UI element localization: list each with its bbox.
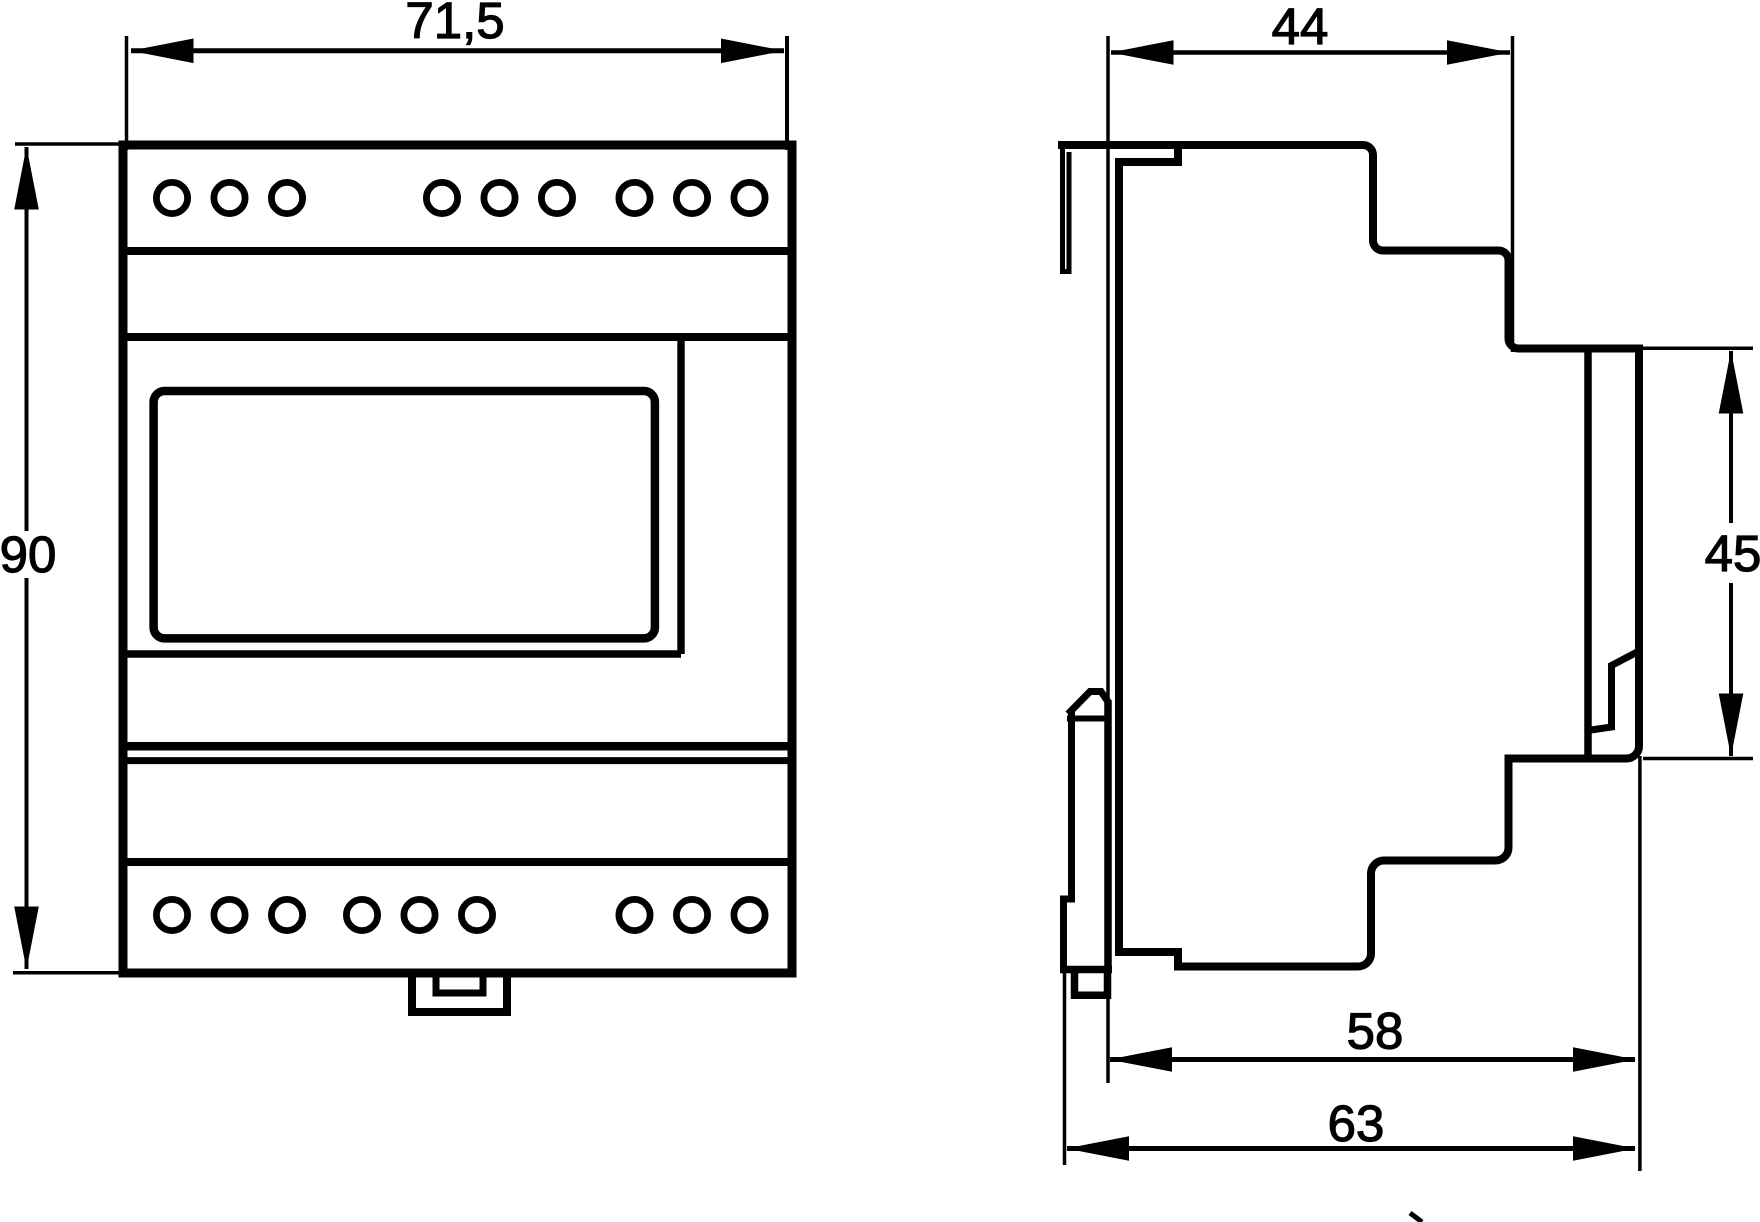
svg-text:71,5: 71,5	[405, 0, 504, 49]
svg-text:45: 45	[1705, 525, 1760, 582]
svg-text:44: 44	[1272, 0, 1329, 55]
svg-text:63: 63	[1328, 1095, 1385, 1152]
svg-text:58: 58	[1347, 1003, 1404, 1060]
svg-text:90: 90	[0, 526, 56, 583]
